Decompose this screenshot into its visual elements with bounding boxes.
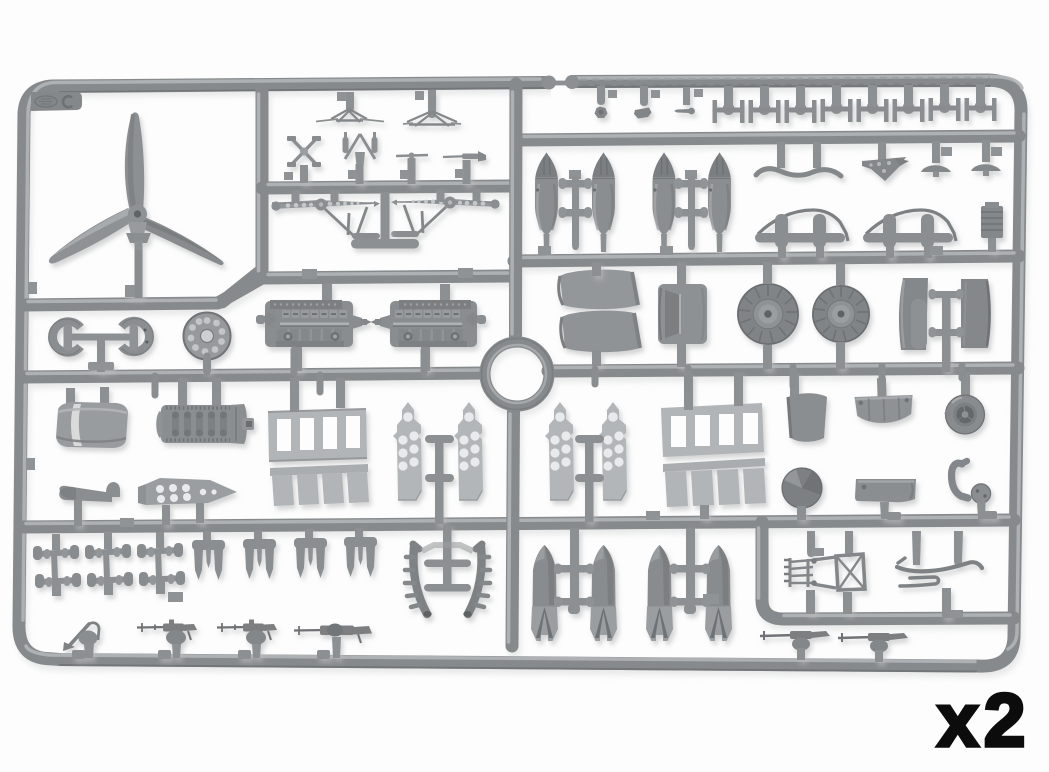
- svg-text:x2: x2: [937, 678, 1030, 762]
